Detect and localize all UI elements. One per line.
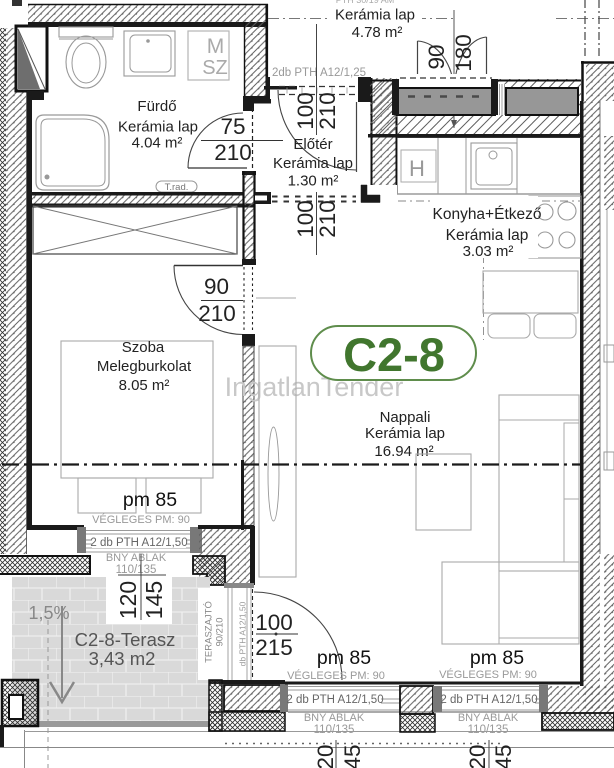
svg-text:BNY ABLAK: BNY ABLAK <box>304 712 365 724</box>
svg-text:BNY ABLAK: BNY ABLAK <box>106 552 167 564</box>
svg-text:2 db PTH A12/1,50: 2 db PTH A12/1,50 <box>90 537 187 549</box>
svg-text:210: 210 <box>214 140 252 165</box>
svg-text:PTH 30/19 AM: PTH 30/19 AM <box>336 0 395 5</box>
svg-text:4.04 m²: 4.04 m² <box>132 135 183 152</box>
svg-text:145: 145 <box>141 581 167 619</box>
svg-text:Kerámia lap: Kerámia lap <box>365 425 445 442</box>
svg-text:C2-8: C2-8 <box>343 328 445 381</box>
svg-text:TERASZAJTÓ: TERASZAJTÓ <box>204 601 215 663</box>
svg-text:45: 45 <box>340 744 365 768</box>
svg-text:Kerámia lap: Kerámia lap <box>446 227 529 244</box>
svg-text:210: 210 <box>198 301 236 326</box>
svg-text:90: 90 <box>424 44 449 69</box>
svg-text:Melegburkolat: Melegburkolat <box>97 358 192 375</box>
svg-text:110/135: 110/135 <box>314 724 355 736</box>
svg-text:2 db PTH A12/1,50: 2 db PTH A12/1,50 <box>286 694 383 706</box>
svg-text:20: 20 <box>313 744 338 768</box>
svg-text:VÉGLEGES PM: 90: VÉGLEGES PM: 90 <box>92 513 190 526</box>
svg-text:SZ: SZ <box>202 57 228 79</box>
svg-text:C2-8-Terasz: C2-8-Terasz <box>75 629 176 650</box>
svg-text:180: 180 <box>451 34 476 72</box>
svg-text:T.rad.: T.rad. <box>165 182 189 193</box>
svg-text:75: 75 <box>220 114 245 139</box>
svg-text:pm 85: pm 85 <box>470 647 524 669</box>
svg-text:2db PTH A12/1,25: 2db PTH A12/1,25 <box>272 67 366 79</box>
svg-text:20: 20 <box>465 744 490 768</box>
svg-text:H: H <box>409 156 425 181</box>
svg-text:4.78 m²: 4.78 m² <box>352 24 403 41</box>
svg-text:BNY ABLAK: BNY ABLAK <box>458 712 519 724</box>
svg-text:Kerámia lap: Kerámia lap <box>118 119 198 136</box>
svg-text:Szoba: Szoba <box>122 339 165 356</box>
svg-text:120: 120 <box>115 581 141 619</box>
svg-text:pm 85: pm 85 <box>123 489 177 511</box>
svg-text:Kerámia lap: Kerámia lap <box>335 7 415 24</box>
svg-text:8.05 m²: 8.05 m² <box>119 377 170 394</box>
svg-text:VÉGLEGES PM: 90: VÉGLEGES PM: 90 <box>439 668 537 681</box>
svg-text:90/210: 90/210 <box>215 617 226 646</box>
svg-text:110/135: 110/135 <box>468 724 509 736</box>
svg-text:1.30 m²: 1.30 m² <box>288 173 339 190</box>
svg-text:Nappali: Nappali <box>380 409 431 426</box>
svg-text:pm 85: pm 85 <box>317 647 371 669</box>
svg-text:db PTH A12/1,50: db PTH A12/1,50 <box>238 601 248 666</box>
svg-text:100: 100 <box>255 610 293 635</box>
svg-text:M: M <box>207 35 225 58</box>
svg-text:3,43 m2: 3,43 m2 <box>89 648 156 669</box>
svg-text:215: 215 <box>255 635 293 660</box>
svg-text:3.03 m²: 3.03 m² <box>463 243 514 260</box>
svg-text:VÉGLEGES PM: 90: VÉGLEGES PM: 90 <box>287 669 385 682</box>
svg-text:Előtér: Előtér <box>293 136 332 153</box>
svg-text:1,5%: 1,5% <box>28 603 69 623</box>
svg-text:90: 90 <box>204 274 229 299</box>
svg-text:210: 210 <box>315 200 340 238</box>
svg-text:210: 210 <box>315 92 340 130</box>
svg-text:Konyha+Étkező: Konyha+Étkező <box>432 206 541 223</box>
svg-text:Kerámia lap: Kerámia lap <box>273 155 353 172</box>
svg-text:45: 45 <box>491 744 516 768</box>
svg-text:Fürdő: Fürdő <box>137 98 176 115</box>
svg-text:2 db PTH A12/1,50: 2 db PTH A12/1,50 <box>440 694 537 706</box>
svg-text:16.94 m²: 16.94 m² <box>374 443 433 460</box>
